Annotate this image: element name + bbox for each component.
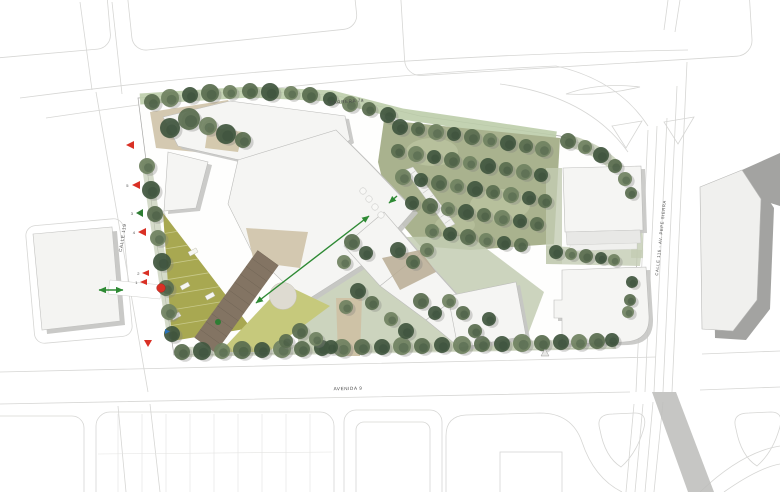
traffic-island-triangle [664,117,694,144]
context-building-east [700,170,761,331]
red-arrow-marker [126,141,134,149]
pepe-sierra-lanes-south [626,402,663,492]
context-block [399,0,753,76]
red-arrow-marker [132,181,140,189]
marker-label: 5 [126,183,129,188]
context-block-curved [446,413,622,492]
context-block [0,0,112,59]
context-block [124,0,358,51]
traffic-island-triangle [612,121,642,148]
red-arrow-marker [142,270,149,276]
pepe-sierra-lanes-north [664,0,680,32]
red-arrow-marker-down [144,340,152,347]
calle119-north-extension [80,2,122,94]
ramp-island [735,412,780,466]
red-dot-marker [157,284,166,293]
context-block-inner [500,452,562,492]
road-shadow-band [652,392,714,492]
calle119-south-extension [118,404,160,492]
marker-label: 4 [133,230,136,235]
marker-label: 2 [137,271,140,276]
circular-plaza [270,283,297,310]
context-building-west [33,227,120,330]
site-plan-canvas: 5 3 4 2 1 CARRERA 7a CALLE 119 AVENIDA 9… [0,0,780,492]
building-podium [566,230,641,251]
carrera7-merge-outer [556,66,648,126]
red-arrow-marker [138,228,146,236]
marker-label: 3 [131,211,134,216]
street-label-avenida9: AVENIDA 9 [334,386,363,392]
green-dot-marker [215,319,221,325]
context-block [0,416,84,492]
street-label-pepe-sierra: CALLE 116 - AV. PEPE SIERRA [654,200,667,276]
parking-grid-lines [98,414,332,492]
traffic-island-teardrop [566,86,640,95]
green-arrow-marker [136,209,143,217]
site-plan-svg: 5 3 4 2 1 CARRERA 7a CALLE 119 AVENIDA 9… [0,0,780,492]
context-block-inner [356,422,430,492]
marker-number-labels: 5 3 4 2 1 [126,183,140,285]
